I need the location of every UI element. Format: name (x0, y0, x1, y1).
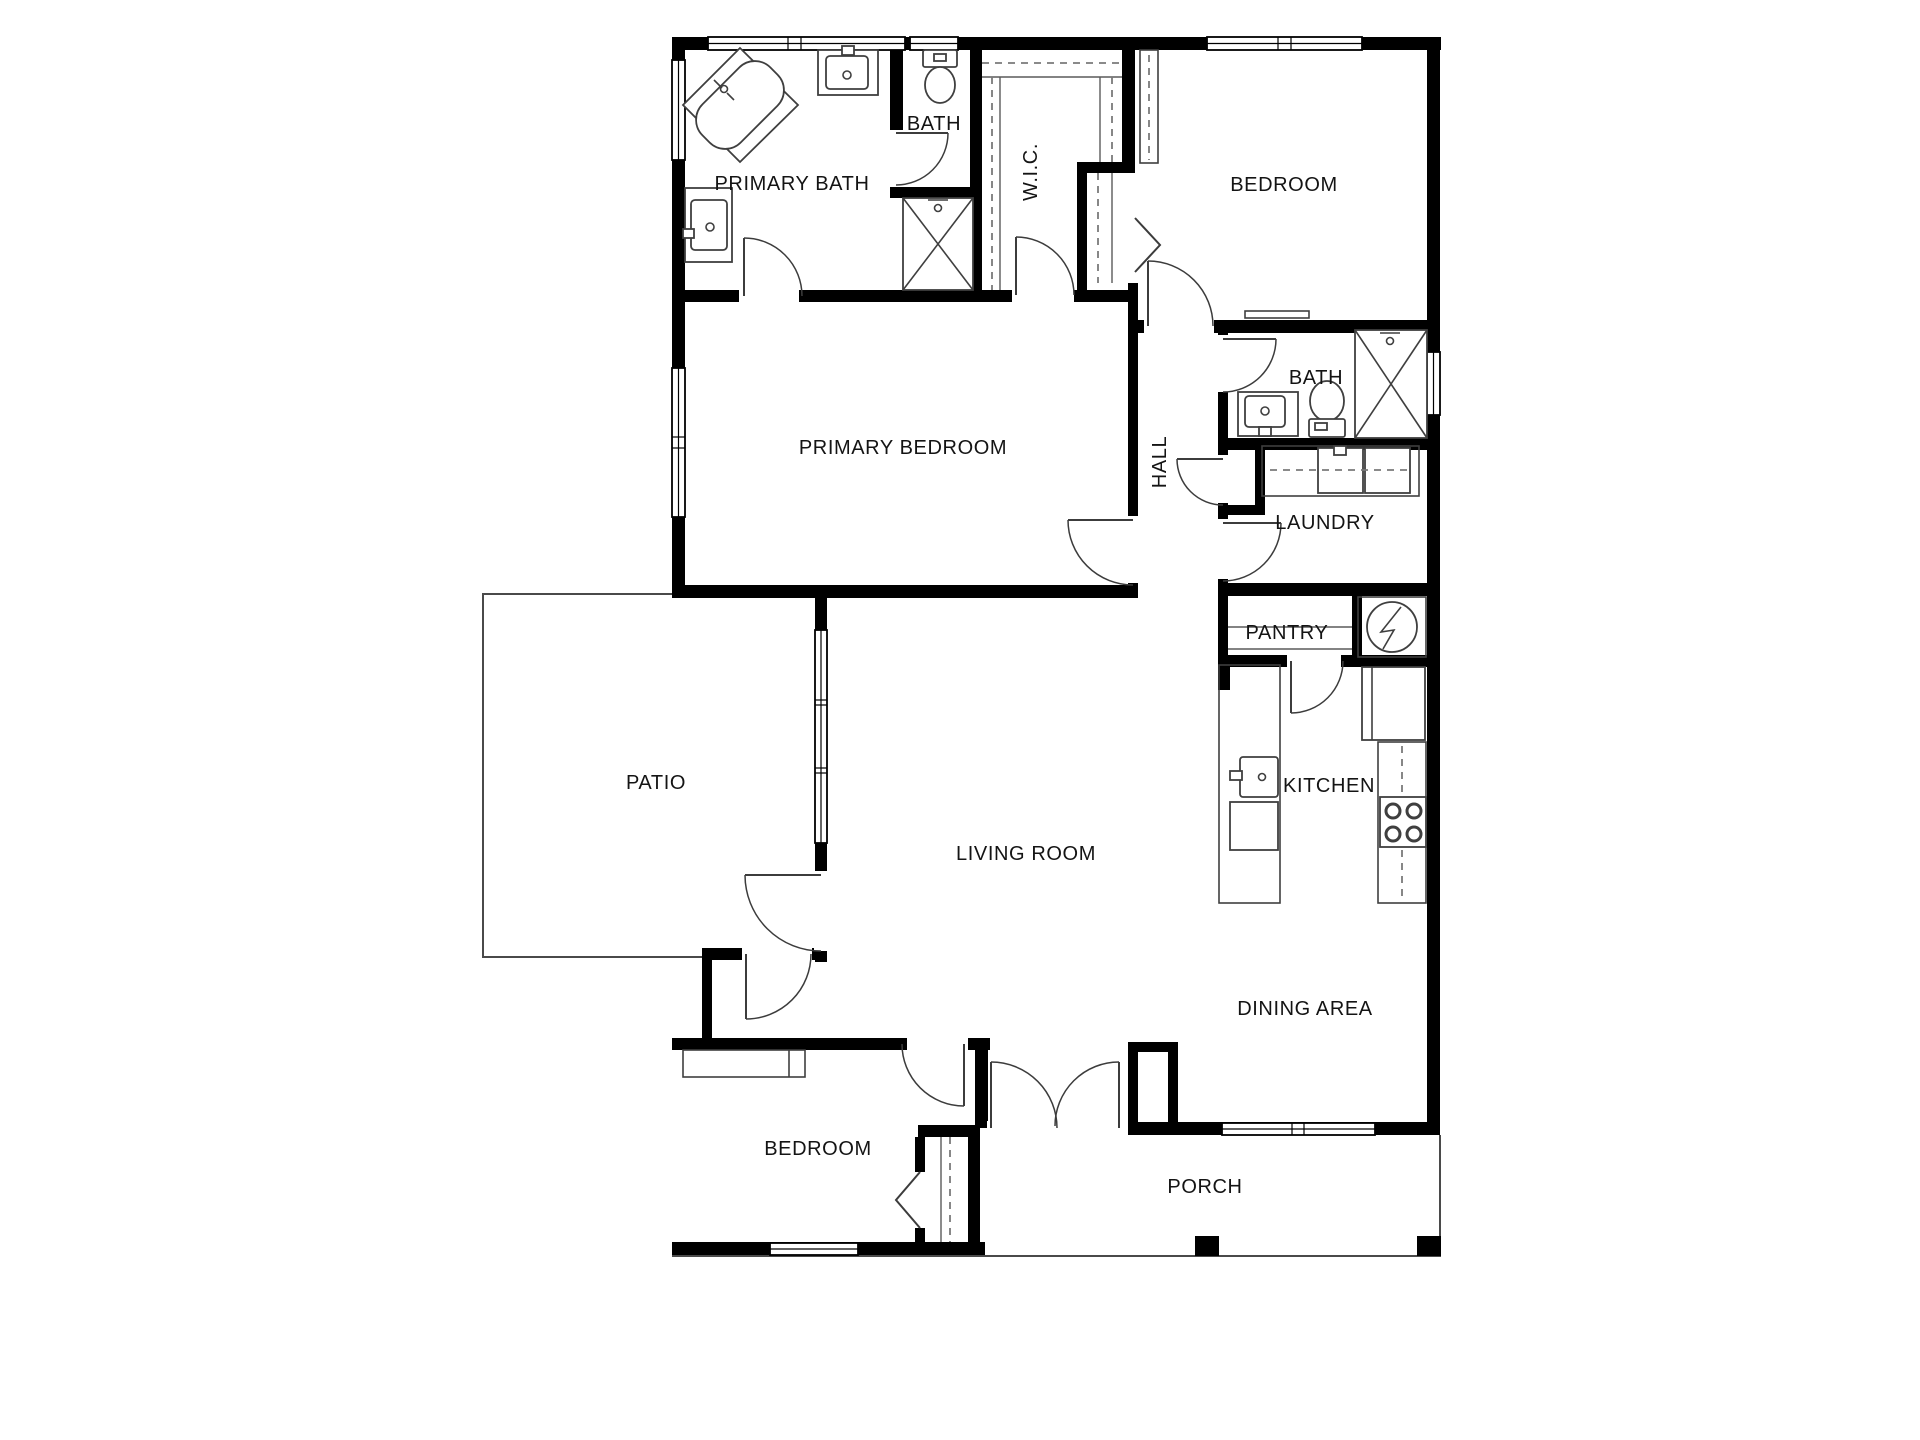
walls (672, 37, 1441, 1255)
window (770, 1243, 858, 1255)
porch-post (1195, 1236, 1219, 1256)
room-label-bath-top: BATH (907, 113, 961, 135)
kitchen-counter (1378, 742, 1426, 903)
door-opening (739, 289, 799, 303)
wall (1218, 505, 1265, 515)
wall (1122, 50, 1135, 173)
door-laundry (1223, 523, 1281, 581)
room-label-hall: HALL (1149, 436, 1171, 488)
shower (1355, 330, 1427, 438)
bifold-door-bedroom-closet (896, 1172, 920, 1228)
floor-plan-page: PRIMARY BATH BATH W.I.C. BEDROOM PRIMARY… (0, 0, 1920, 1440)
window (672, 368, 685, 517)
room-label-living-room: LIVING ROOM (956, 843, 1096, 865)
door-primary-bath (744, 238, 802, 296)
wall (968, 1125, 980, 1255)
wall (918, 1125, 978, 1137)
toilet (1309, 381, 1345, 437)
kitchen-counter (1219, 665, 1280, 903)
door-patio (745, 875, 821, 951)
room-label-bedroom-top: BEDROOM (1230, 174, 1338, 196)
toilet (923, 50, 957, 103)
wall (1352, 596, 1362, 657)
window (1427, 352, 1440, 415)
room-label-wic: W.I.C. (1020, 143, 1042, 201)
room-label-primary-bedroom: PRIMARY BEDROOM (799, 437, 1007, 459)
vanity-sink (1238, 392, 1298, 436)
door-opening (1217, 519, 1229, 579)
refrigerator (1362, 667, 1425, 740)
vanity-sink (683, 188, 732, 262)
door-opening (1127, 516, 1139, 583)
window (672, 60, 685, 160)
wall (1218, 655, 1230, 690)
room-label-dining-area: DINING AREA (1237, 998, 1373, 1020)
door-opening (814, 871, 828, 951)
door-bedroom-bottom (902, 1044, 964, 1106)
door-opening (1144, 319, 1214, 334)
window (1207, 37, 1362, 50)
door-opening (1217, 335, 1229, 392)
door-bedroom-top (1148, 261, 1213, 326)
dishwasher (1230, 802, 1278, 850)
room-label-bath-right: BATH (1289, 367, 1343, 389)
porch-post (1417, 1236, 1441, 1256)
door-wic (1016, 237, 1074, 295)
vanity-sink (818, 46, 878, 95)
door-opening (1287, 654, 1341, 668)
window (1222, 1123, 1375, 1135)
washer-dryer (1262, 446, 1419, 496)
kitchen-sink (1230, 757, 1278, 797)
wall (672, 290, 982, 302)
wall (1218, 583, 1433, 596)
wall (702, 948, 712, 1048)
room-label-primary-bath: PRIMARY BATH (714, 173, 869, 195)
door-opening (907, 1037, 968, 1051)
door-opening (1012, 289, 1074, 303)
outdoor-outlines (483, 594, 1441, 1256)
floor-plan-drawing: PRIMARY BATH BATH W.I.C. BEDROOM PRIMARY… (0, 0, 1920, 1440)
shelf (1245, 311, 1309, 318)
wall (1255, 448, 1265, 508)
wall (1128, 290, 1138, 517)
fixtures (683, 46, 1441, 1256)
wall (975, 1038, 988, 1128)
window-band-living (815, 630, 827, 843)
stove (1380, 797, 1426, 847)
window (708, 37, 905, 50)
shower (903, 198, 973, 290)
door-opening (889, 130, 904, 187)
french-doors (991, 1062, 1119, 1128)
porch-pillar-core (1138, 1052, 1168, 1122)
room-label-patio: PATIO (626, 772, 686, 794)
door-opening (1217, 455, 1229, 503)
door-pantry (1291, 661, 1343, 713)
room-label-kitchen: KITCHEN (1283, 775, 1375, 797)
wall (890, 187, 982, 198)
corner-bathtub (683, 48, 798, 162)
room-label-bedroom-bottom: BEDROOM (764, 1138, 872, 1160)
room-label-pantry: PANTRY (1246, 622, 1329, 644)
window (910, 37, 958, 50)
door-coat-closet (746, 954, 811, 1019)
wall (672, 585, 1138, 598)
wall (915, 1137, 925, 1172)
water-heater (1358, 597, 1426, 657)
room-label-laundry: LAUNDRY (1275, 512, 1374, 534)
wardrobe (683, 1050, 805, 1077)
room-label-porch: PORCH (1167, 1176, 1242, 1198)
door-primary-bedroom (1068, 520, 1133, 585)
windows (672, 37, 1440, 1255)
door-hall-closet (1177, 459, 1223, 505)
wall (1077, 162, 1087, 293)
door-bath-right (1223, 339, 1276, 392)
